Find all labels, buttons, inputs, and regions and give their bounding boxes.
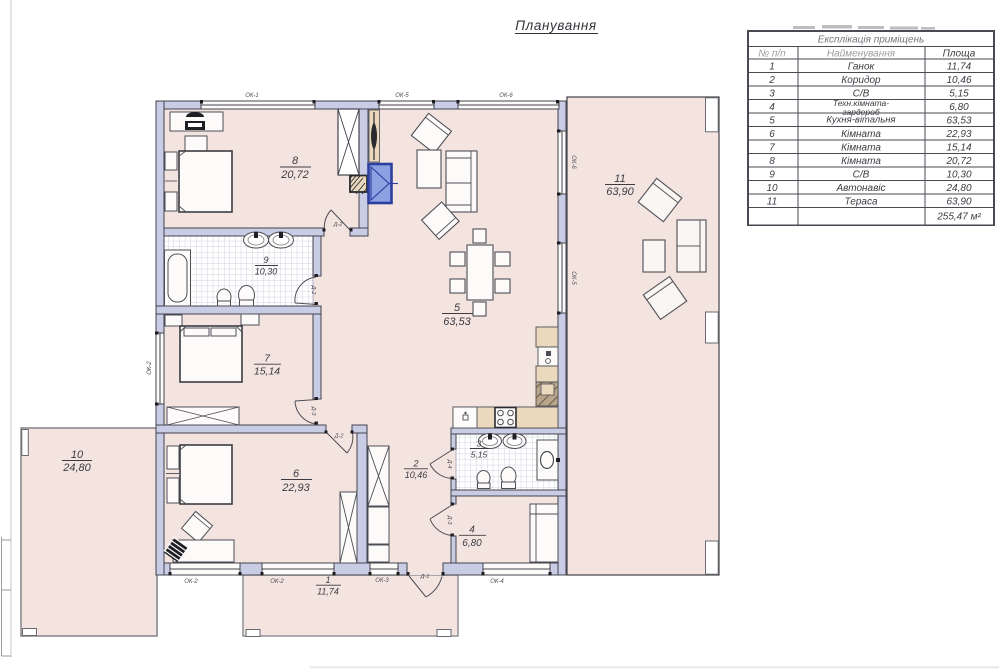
svg-text:Кімната: Кімната [841, 143, 881, 154]
svg-text:Кімната: Кімната [841, 156, 881, 167]
svg-text:24,80: 24,80 [62, 462, 91, 474]
svg-text:10: 10 [71, 449, 84, 461]
svg-text:4: 4 [769, 102, 775, 113]
svg-text:9: 9 [263, 255, 268, 265]
svg-text:ОК-5: ОК-5 [395, 93, 409, 99]
svg-text:ОК-4: ОК-4 [490, 579, 504, 585]
svg-text:10,46: 10,46 [946, 75, 971, 86]
svg-text:11,74: 11,74 [317, 587, 339, 597]
svg-text:2: 2 [768, 75, 775, 86]
svg-text:10,30: 10,30 [255, 267, 278, 277]
svg-text:11,74: 11,74 [947, 62, 972, 73]
svg-text:6,80: 6,80 [462, 538, 482, 549]
svg-text:Кухня-вітальня: Кухня-вітальня [826, 115, 895, 126]
svg-text:ОК-2: ОК-2 [270, 579, 284, 585]
svg-text:ОК-5: ОК-5 [570, 271, 576, 285]
svg-text:15,14: 15,14 [254, 366, 280, 378]
svg-text:2: 2 [412, 459, 418, 469]
svg-text:ОК-6: ОК-6 [570, 155, 576, 169]
svg-text:Найменування: Найменування [827, 49, 896, 60]
svg-text:Д-2: Д-2 [333, 222, 343, 228]
svg-text:6: 6 [293, 468, 300, 480]
svg-text:ОК-1: ОК-1 [245, 93, 259, 99]
svg-text:Д-3: Д-3 [310, 406, 316, 417]
svg-text:9: 9 [769, 170, 775, 181]
svg-text:ОК-3: ОК-3 [375, 578, 389, 584]
svg-text:255,47 м²: 255,47 м² [936, 212, 981, 223]
svg-text:ОК-6: ОК-6 [499, 93, 513, 99]
svg-text:С/В: С/В [853, 170, 870, 181]
svg-text:Ганок: Ганок [848, 62, 876, 73]
svg-text:Експлікація приміщень: Експлікація приміщень [818, 35, 925, 46]
svg-text:Площа: Площа [943, 49, 976, 60]
svg-text:Коридор: Коридор [841, 75, 881, 86]
svg-text:№ п/п: № п/п [758, 49, 786, 60]
svg-text:15,14: 15,14 [946, 143, 971, 154]
svg-text:Автонавіс: Автонавіс [835, 183, 885, 194]
svg-text:8: 8 [292, 155, 299, 167]
svg-text:63,53: 63,53 [946, 116, 971, 127]
svg-text:5,15: 5,15 [949, 89, 969, 100]
svg-text:1: 1 [325, 575, 330, 585]
svg-text:22,93: 22,93 [945, 129, 971, 140]
svg-text:4: 4 [469, 525, 475, 536]
svg-text:63,90: 63,90 [606, 186, 634, 198]
svg-text:3: 3 [769, 89, 775, 100]
svg-text:7: 7 [769, 143, 775, 154]
svg-text:20,72: 20,72 [280, 169, 309, 181]
svg-text:8: 8 [769, 156, 775, 167]
svg-text:20,72: 20,72 [945, 156, 971, 167]
svg-text:ОК-2: ОК-2 [184, 579, 198, 585]
svg-text:Тераса: Тераса [844, 197, 877, 208]
svg-text:1: 1 [769, 62, 775, 73]
svg-text:Д-2: Д-2 [310, 285, 316, 295]
svg-text:3: 3 [477, 439, 482, 449]
svg-text:6,80: 6,80 [949, 102, 969, 113]
svg-text:ОК-2: ОК-2 [147, 361, 153, 375]
svg-text:5: 5 [454, 302, 461, 314]
svg-text:11: 11 [767, 197, 777, 208]
svg-text:Д-1: Д-1 [420, 574, 430, 580]
svg-text:6: 6 [769, 129, 775, 140]
svg-text:22,93: 22,93 [281, 482, 310, 494]
svg-text:10,30: 10,30 [946, 170, 971, 181]
svg-text:Д-4: Д-4 [446, 459, 452, 469]
svg-text:63,90: 63,90 [946, 197, 971, 208]
svg-text:Д-2: Д-2 [334, 434, 344, 440]
svg-text:24,80: 24,80 [945, 183, 971, 194]
svg-text:10: 10 [766, 183, 778, 194]
svg-text:5: 5 [769, 116, 775, 127]
svg-text:Кімната: Кімната [841, 129, 881, 140]
svg-text:11: 11 [614, 173, 625, 185]
svg-text:10,46: 10,46 [405, 470, 428, 480]
svg-text:5,15: 5,15 [471, 450, 488, 460]
svg-text:Планування: Планування [515, 18, 596, 33]
svg-text:Д-3: Д-3 [446, 515, 452, 526]
svg-text:63,53: 63,53 [443, 316, 471, 328]
